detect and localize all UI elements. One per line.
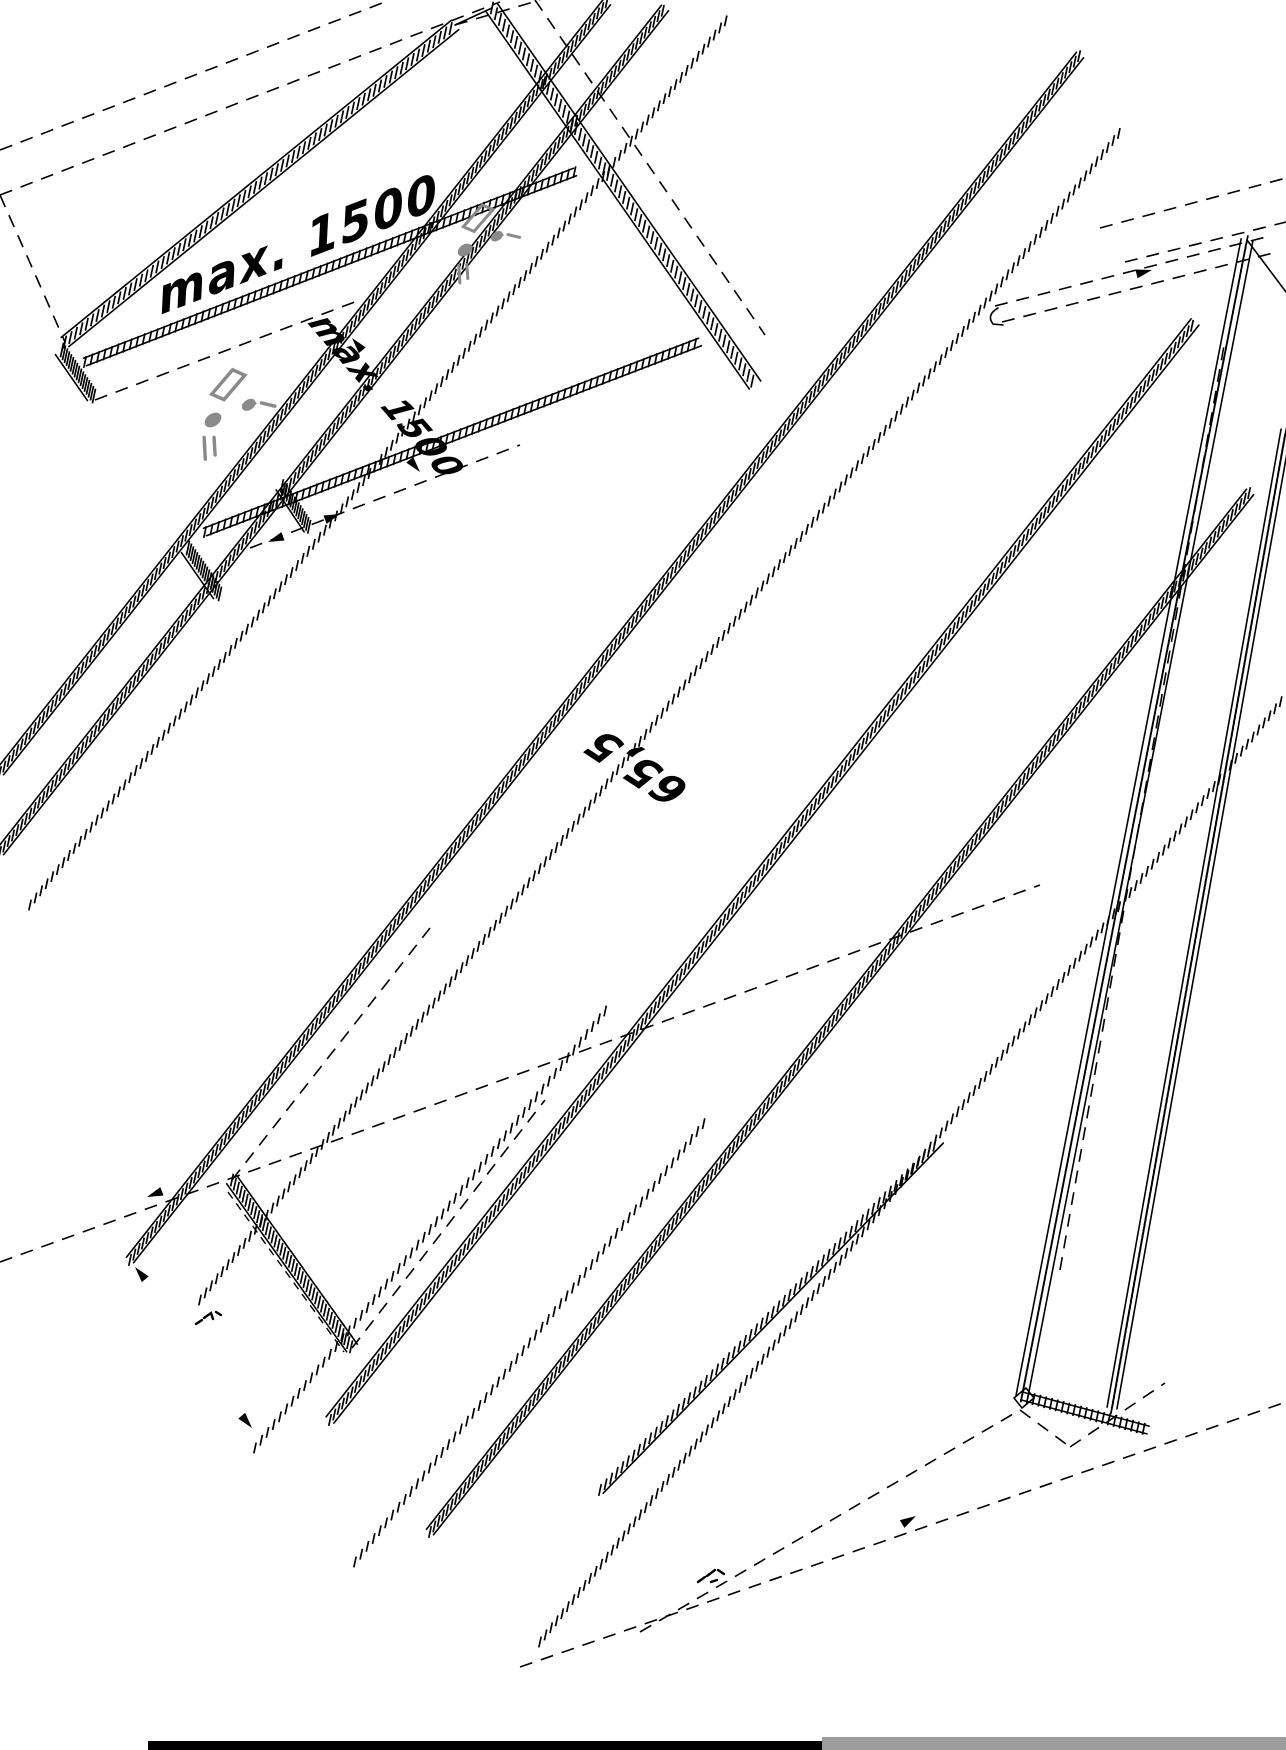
- dimension-label-center: 65,5: [572, 722, 702, 813]
- panel-edge-lines: [62, 8, 1286, 350]
- groove-end-cap: [990, 308, 1003, 325]
- dimension-arrow-icon: [1135, 270, 1152, 279]
- dimension-arrow-icon: [135, 1267, 149, 1282]
- tiny-annotation-mark: [196, 1312, 221, 1324]
- assembly-diagram-page: max. 1500 max. 1500 65,5: [0, 0, 1286, 1750]
- scan-edge-bar-black: [148, 1741, 822, 1750]
- dimension-arrow-icon: [900, 1516, 916, 1528]
- phantom-dashed-lines: [0, 0, 1286, 1667]
- dimension-arrow-icon: [323, 514, 340, 524]
- dimension-arrow-icons: [135, 270, 1152, 1528]
- hatched-panel-edges: [0, 0, 1286, 1647]
- scan-edge-bar-gray: [822, 1737, 1286, 1750]
- dimension-arrow-icon: [238, 1413, 252, 1428]
- assembly-diagram: max. 1500 max. 1500 65,5: [0, 0, 1286, 1750]
- dimension-arrow-icon: [147, 1187, 164, 1197]
- dimension-arrow-icon: [268, 532, 285, 542]
- tiny-annotation-mark: [698, 1570, 724, 1582]
